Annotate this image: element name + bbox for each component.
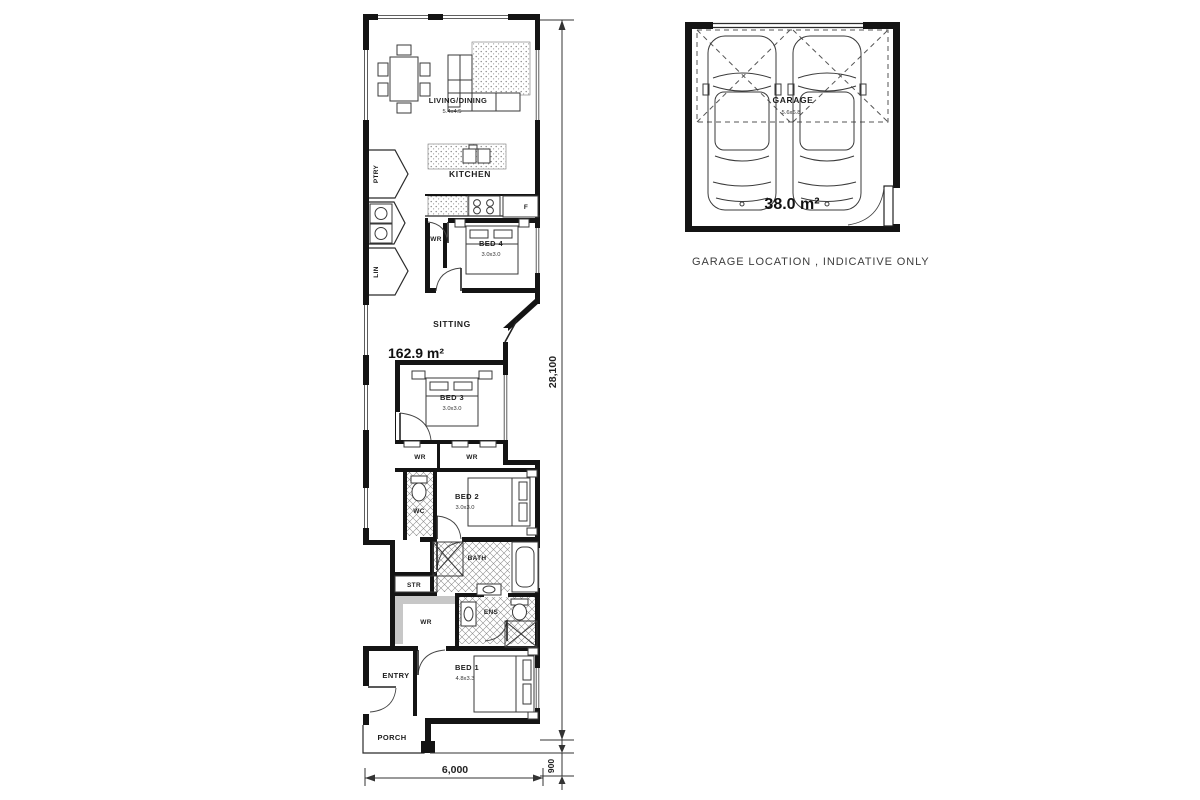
- bath-label: BATH: [468, 555, 487, 562]
- laundry-appliances: [369, 202, 405, 244]
- bed3-dims: 3.0x3.0: [442, 406, 461, 412]
- bed4-dims: 3.0x3.0: [481, 252, 500, 258]
- overall-length-dim: 28,100: [547, 356, 559, 388]
- ensuite-label: ENS: [484, 609, 499, 616]
- fridge-label: F: [524, 204, 528, 211]
- bed2-dims: 3.0x3.0: [455, 505, 474, 511]
- garage-label: GARAGE: [773, 95, 814, 105]
- overall-width-dim: 6,000: [442, 764, 468, 776]
- bed1-robe-label: WR: [420, 619, 431, 626]
- fridge: [503, 196, 538, 217]
- pantry-label: PTRY: [373, 164, 380, 183]
- bed2-label: BED 2: [455, 492, 479, 501]
- living-dining-label: LIVING/DINING: [429, 96, 488, 105]
- garage-dims: 5.6x6.8: [781, 110, 800, 116]
- bed3-label: BED 3: [440, 393, 464, 402]
- bed1-bed: [474, 648, 538, 719]
- wc-toilet: [411, 476, 427, 501]
- sitting-label: SITTING: [433, 319, 471, 329]
- kitchen-label: KITCHEN: [449, 169, 491, 179]
- store-label: STR: [407, 582, 421, 589]
- bed1-label: BED 1: [455, 663, 479, 672]
- bed4-label: BED 4: [479, 239, 504, 248]
- car-left: [703, 36, 781, 210]
- bed4-robe-label: WR: [430, 236, 441, 243]
- dining-table: [378, 45, 430, 113]
- wc-label: WC: [413, 508, 424, 515]
- bed1-dims: 4.8x3.3: [455, 676, 474, 682]
- living-dining-dims: 5.4x4.5: [442, 109, 461, 115]
- linen-label: LIN: [373, 266, 380, 277]
- porch-depth-dim: 900: [546, 759, 556, 773]
- floorplan-page: LIVING/DINING 5.4x4.5 KITCHEN PTRY LIN F…: [0, 0, 1200, 800]
- garage-note: GARAGE LOCATION , INDICATIVE ONLY: [692, 256, 930, 268]
- total-area-label: 162.9 m²: [388, 345, 444, 361]
- floorplan-svg: LIVING/DINING 5.4x4.5 KITCHEN PTRY LIN F…: [0, 0, 1200, 800]
- bed3-robe-label: WR: [414, 454, 425, 461]
- porch-label: PORCH: [377, 733, 406, 742]
- bed2-robe-label: WR: [466, 454, 477, 461]
- entry-label: ENTRY: [382, 671, 409, 680]
- garage-area-label: 38.0 m²: [764, 196, 819, 213]
- bed2-bed: [468, 470, 537, 535]
